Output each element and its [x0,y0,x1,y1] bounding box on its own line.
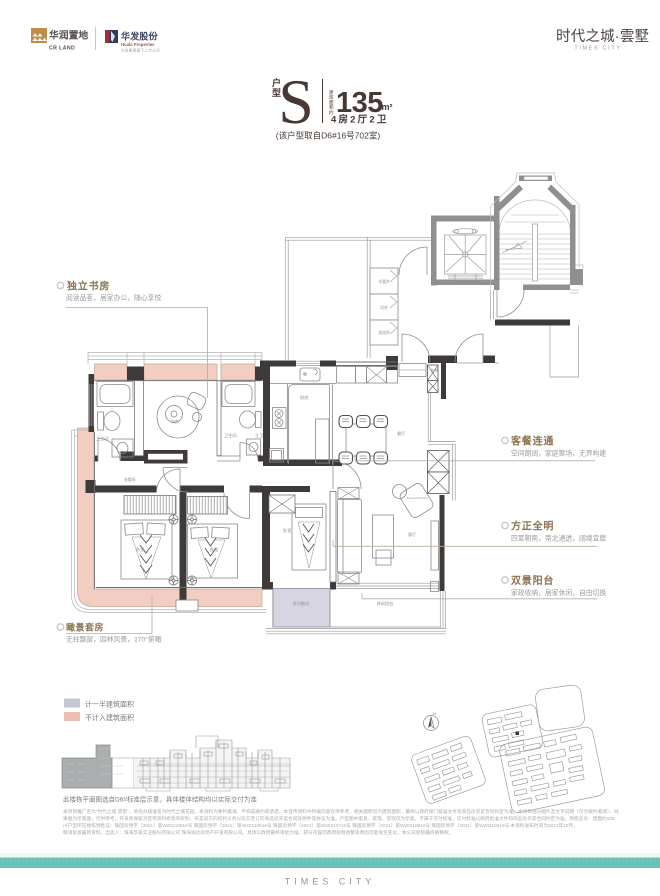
svg-text:强电井: 强电井 [378,330,390,335]
svg-text:卧室: 卧室 [283,527,291,534]
svg-text:客厅: 客厅 [408,531,416,538]
svg-text:客餐连通: 客餐连通 [510,435,554,448]
svg-text:卫生间: 卫生间 [96,435,109,442]
svg-text:计一半建筑面积: 计一半建筑面积 [85,700,134,709]
svg-text:无柱飘窗，园林风景，270°俯瞰: 无柱飘窗，园林风景，270°俯瞰 [66,635,162,644]
svg-text:卧室: 卧室 [210,546,218,553]
svg-text:TIMES CITY: TIMES CITY [285,877,376,887]
svg-text:时代之城·雲墅: 时代之城·雲墅 [556,28,649,45]
svg-text:休闲阳台: 休闲阳台 [377,600,394,607]
svg-text:家政收纳，居家休闲，自由切换: 家政收纳，居家休闲，自由切换 [511,588,606,597]
svg-text:阅读品茗，居家办公，随心享悦: 阅读品茗，居家办公，随心享悦 [66,293,161,302]
svg-text:卧室: 卧室 [136,546,144,553]
svg-text:四室朝南，南北通透，阔境宜居: 四室朝南，南北通透，阔境宜居 [511,534,606,543]
svg-text:华发集团旗下上市公司: 华发集团旗下上市公司 [121,48,160,53]
svg-text:书房: 书房 [170,418,178,425]
svg-text:衣帽间: 衣帽间 [124,477,136,482]
svg-text:Huafa Properties: Huafa Properties [121,42,155,47]
svg-text:㎡户型所在楼栋预售证：珠国房预字（2021）第W202106: ㎡户型所在楼栋预售证：珠国房预字（2021）第W20210616号 珠国房预字（… [63,822,578,829]
svg-text:CR LAND: CR LAND [49,46,75,52]
svg-text:S: S [278,66,314,137]
svg-text:N: N [433,711,436,716]
svg-text:m²: m² [382,102,393,112]
svg-text:华润置地: 华润置地 [49,29,88,42]
svg-text:玄关: 玄关 [430,367,438,374]
svg-text:(该户型取自D6#16号702室): (该户型取自D6#16号702室) [276,131,381,141]
svg-text:多功能间: 多功能间 [293,600,310,607]
svg-text:瞰景套房: 瞰景套房 [66,622,104,633]
svg-text:华发股份: 华发股份 [121,31,159,42]
svg-text:敬请留意最新资料。出卖人：珠海华发实业股份有限公司 珠海润达: 敬请留意最新资料。出卖人：珠海华发实业股份有限公司 珠海润达房地产开发有限公司。… [63,829,453,836]
svg-text:厨房: 厨房 [300,394,308,401]
svg-text:TIMES CITY: TIMES CITY [574,46,621,52]
svg-text:本项目推广名为"时代之城·雲墅"，地名办核准名为时代之城花园: 本项目推广名为"时代之城·雲墅"，地名办核准名为时代之城花园。本资料为要约邀请，… [63,808,619,815]
svg-text:方正全明: 方正全明 [511,520,554,533]
svg-text:4房2厅2卫: 4房2厅2卫 [331,114,389,126]
svg-text:水管井: 水管井 [378,279,390,284]
svg-text:餐厅: 餐厅 [397,430,405,437]
svg-text:风井: 风井 [380,305,388,310]
svg-text:果图为示意图，仅供参考，开发商保留对宣传资料修改的权利，买卖: 果图为示意图，仅供参考，开发商保留对宣传资料修改的权利，买卖双方的权利义务以双方… [63,815,615,822]
svg-text:主卫: 主卫 [255,432,263,438]
svg-text:此楼栋平面图选自D6#标准层示意，具体楼体结构均以实际交付为: 此楼栋平面图选自D6#标准层示意，具体楼体结构均以实际交付为准 [63,795,257,804]
svg-text:独立书房: 独立书房 [67,280,110,293]
svg-text:卫生间: 卫生间 [224,432,237,439]
svg-text:双景阳台: 双景阳台 [511,574,554,587]
svg-text:不计入建筑面积: 不计入建筑面积 [85,713,134,722]
svg-text:空间朗阔，家庭聚场，无界构建: 空间朗阔，家庭聚场，无界构建 [511,449,606,458]
